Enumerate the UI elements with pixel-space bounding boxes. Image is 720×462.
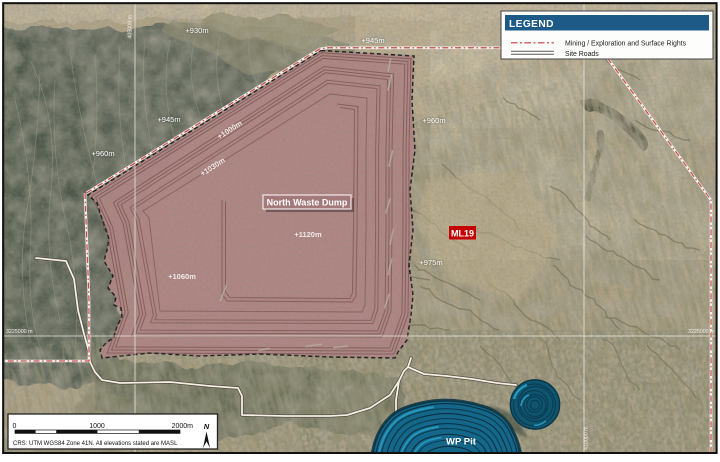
svg-text:1000: 1000: [89, 423, 105, 430]
svg-text:ML19: ML19: [451, 229, 474, 239]
svg-text:410000 m: 410000 m: [584, 426, 590, 450]
svg-text:405000 m: 405000 m: [128, 14, 134, 38]
svg-text:North Waste Dump: North Waste Dump: [267, 197, 348, 207]
svg-text:N: N: [204, 422, 210, 431]
svg-text:3225000 m: 3225000 m: [688, 329, 715, 335]
svg-text:3225000 m: 3225000 m: [6, 329, 33, 335]
svg-text:+960m: +960m: [422, 116, 445, 125]
svg-text:+1060m: +1060m: [168, 272, 196, 281]
svg-text:+960m: +960m: [91, 149, 114, 158]
svg-text:+945m: +945m: [361, 36, 384, 45]
svg-text:+945m: +945m: [157, 115, 180, 124]
svg-text:Site Roads: Site Roads: [565, 51, 599, 58]
svg-text:+1120m: +1120m: [294, 230, 322, 239]
svg-text:Mining / Exploration and Surfa: Mining / Exploration and Surface Rights: [565, 41, 687, 48]
svg-text:2000m: 2000m: [172, 423, 194, 430]
svg-text:+975m: +975m: [419, 258, 442, 267]
svg-text:WP Pit: WP Pit: [446, 437, 477, 448]
svg-text:0: 0: [13, 423, 17, 430]
svg-text:LEGEND: LEGEND: [509, 19, 554, 30]
svg-text:CRS: UTM WGS84 Zone 41N. All e: CRS: UTM WGS84 Zone 41N. All elevations …: [13, 441, 178, 447]
svg-text:+930m: +930m: [185, 26, 208, 35]
